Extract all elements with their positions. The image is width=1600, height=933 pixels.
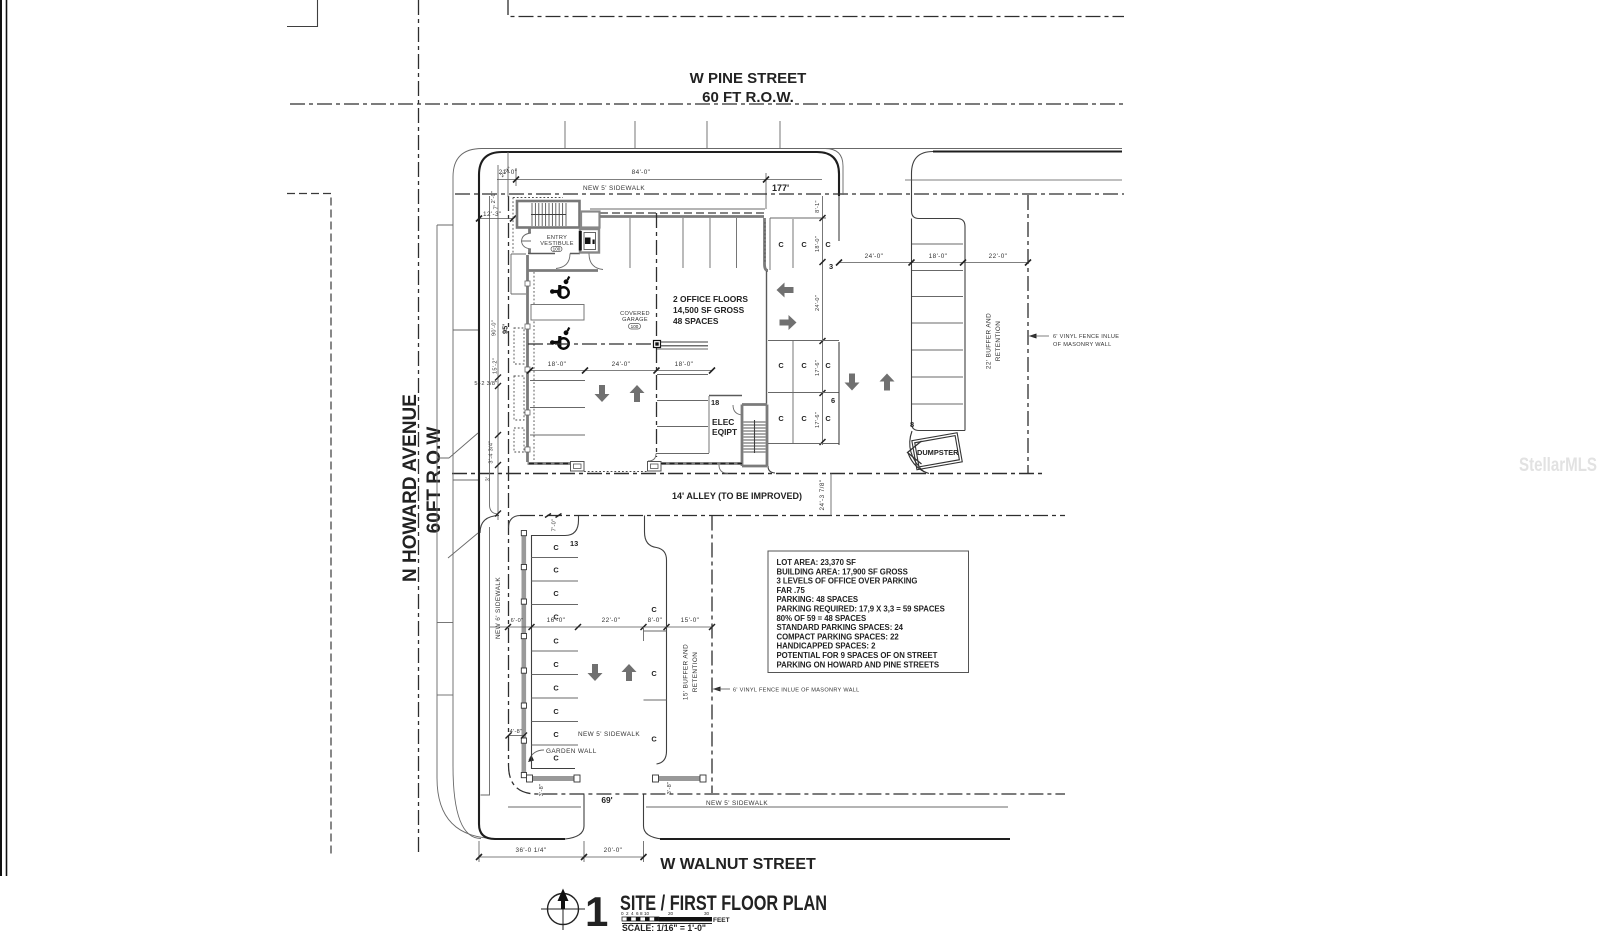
svg-text:20'-0": 20'-0" bbox=[604, 847, 623, 854]
svg-text:NEW 6' SIDEWALK: NEW 6' SIDEWALK bbox=[495, 577, 502, 639]
svg-text:100: 100 bbox=[553, 247, 561, 252]
svg-text:16'-0": 16'-0" bbox=[547, 617, 566, 624]
svg-text:C: C bbox=[778, 361, 784, 370]
svg-text:20: 20 bbox=[668, 911, 674, 916]
svg-text:C: C bbox=[801, 414, 807, 423]
svg-text:24'-0": 24'-0" bbox=[815, 295, 821, 311]
svg-text:15' BUFFER AND: 15' BUFFER AND bbox=[683, 644, 690, 700]
svg-text:4'-8": 4'-8" bbox=[510, 729, 523, 735]
svg-text:FAR .75: FAR .75 bbox=[777, 586, 806, 595]
svg-text:C: C bbox=[778, 240, 784, 249]
svg-text:2: 2 bbox=[626, 911, 629, 916]
svg-text:15'-2": 15'-2" bbox=[493, 358, 499, 374]
svg-text:17'-6": 17'-6" bbox=[815, 412, 821, 428]
svg-text:6' VINYL FENCE INLUE: 6' VINYL FENCE INLUE bbox=[1053, 334, 1119, 340]
svg-text:C: C bbox=[553, 637, 559, 646]
svg-text:W WALNUT STREET: W WALNUT STREET bbox=[660, 856, 816, 873]
svg-text:W PINE STREET: W PINE STREET bbox=[690, 70, 807, 87]
svg-text:8'-1": 8'-1" bbox=[815, 200, 821, 213]
svg-text:8: 8 bbox=[640, 911, 643, 916]
svg-text:4: 4 bbox=[631, 911, 634, 916]
svg-text:36'-0 1/4": 36'-0 1/4" bbox=[516, 847, 547, 854]
svg-text:6' VINYL FENCE INLUE OF M: 6' VINYL FENCE INLUE OF MASONRY WALL bbox=[733, 688, 860, 694]
svg-text:3'-8": 3'-8" bbox=[539, 784, 545, 797]
svg-text:7'-0": 7'-0" bbox=[552, 519, 558, 532]
svg-text:ELEC: ELEC bbox=[712, 417, 734, 427]
svg-text:EQIPT: EQIPT bbox=[712, 427, 738, 437]
svg-text:STANDARD PARKING SPACES: 24: STANDARD PARKING SPACES: 24 bbox=[777, 623, 904, 632]
svg-text:18'-0": 18'-0" bbox=[675, 361, 694, 368]
svg-text:80% OF 59 = 48 SPACES: 80% OF 59 = 48 SPACES bbox=[777, 614, 867, 623]
svg-text:C: C bbox=[825, 240, 831, 249]
svg-text:15'-0": 15'-0" bbox=[681, 617, 700, 624]
svg-text:30: 30 bbox=[704, 911, 710, 916]
svg-text:NEW 5' SIDEWALK: NEW 5' SIDEWALK bbox=[583, 185, 645, 192]
svg-text:N HOWARD AVENUE: N HOWARD AVENUE bbox=[400, 394, 421, 582]
svg-text:3: 3 bbox=[829, 262, 833, 271]
svg-text:18'-0": 18'-0" bbox=[815, 236, 821, 252]
svg-text:BUILDING AREA: 17,900 SF GROSS: BUILDING AREA: 17,900 SF GROSS bbox=[777, 567, 908, 576]
svg-text:RETENTION: RETENTION bbox=[692, 652, 699, 693]
svg-text:60FT R.O.W: 60FT R.O.W bbox=[424, 427, 445, 534]
svg-text:3 LEVELS OF OFFICE OVER PARKIN: 3 LEVELS OF OFFICE OVER PARKING bbox=[777, 577, 918, 586]
svg-text:69': 69' bbox=[601, 795, 612, 805]
svg-text:12'-3": 12'-3" bbox=[483, 211, 502, 218]
svg-text:5'-2 3/8": 5'-2 3/8" bbox=[474, 381, 497, 387]
svg-text:13: 13 bbox=[570, 539, 578, 548]
svg-text:2'-0": 2'-0" bbox=[491, 191, 497, 204]
svg-text:C: C bbox=[553, 543, 559, 552]
svg-text:C: C bbox=[651, 669, 657, 678]
svg-text:10: 10 bbox=[644, 911, 650, 916]
svg-text:24'-0": 24'-0" bbox=[865, 253, 884, 260]
svg-text:C: C bbox=[553, 707, 559, 716]
svg-text:3': 3' bbox=[486, 477, 492, 482]
svg-text:3'-4 3/4": 3'-4 3/4" bbox=[489, 440, 495, 463]
svg-text:6'-0": 6'-0" bbox=[511, 618, 524, 624]
svg-text:C: C bbox=[651, 605, 657, 614]
svg-text:84'-0": 84'-0" bbox=[632, 169, 651, 176]
svg-text:NEW 5' SIDEWALK: NEW 5' SIDEWALK bbox=[578, 731, 640, 738]
svg-text:GARAGE: GARAGE bbox=[622, 317, 648, 323]
svg-text:PARKING: 48 SPACES: PARKING: 48 SPACES bbox=[777, 595, 859, 604]
svg-text:C: C bbox=[825, 361, 831, 370]
svg-text:C: C bbox=[825, 414, 831, 423]
svg-text:22'-0": 22'-0" bbox=[602, 617, 621, 624]
svg-text:NEW 5' SIDEWALK: NEW 5' SIDEWALK bbox=[706, 800, 768, 807]
svg-text:C: C bbox=[553, 730, 559, 739]
svg-text:C: C bbox=[778, 414, 784, 423]
svg-text:22' BUFFER AND: 22' BUFFER AND bbox=[986, 313, 993, 369]
svg-text:C: C bbox=[553, 660, 559, 669]
svg-text:1: 1 bbox=[585, 888, 608, 933]
svg-text:22'-0": 22'-0" bbox=[989, 253, 1008, 260]
svg-text:17'-6": 17'-6" bbox=[815, 360, 821, 376]
svg-text:C: C bbox=[553, 684, 559, 693]
svg-text:6: 6 bbox=[636, 911, 639, 916]
svg-text:24'-0": 24'-0" bbox=[612, 361, 631, 368]
svg-text:7': 7' bbox=[494, 205, 500, 210]
svg-text:2 OFFICE FLOORS: 2 OFFICE FLOORS bbox=[673, 294, 748, 304]
svg-text:14,500 SF GROSS: 14,500 SF GROSS bbox=[673, 305, 745, 315]
svg-text:C: C bbox=[801, 361, 807, 370]
svg-text:C: C bbox=[651, 735, 657, 744]
svg-text:HANDICAPPED SPACES: 2: HANDICAPPED SPACES: 2 bbox=[777, 642, 877, 651]
svg-text:100: 100 bbox=[631, 324, 639, 329]
svg-text:SITE / FIRST FLOOR PLAN: SITE / FIRST FLOOR PLAN bbox=[620, 892, 827, 915]
svg-text:C: C bbox=[553, 589, 559, 598]
svg-text:18'-0": 18'-0" bbox=[548, 361, 567, 368]
svg-text:48 SPACES: 48 SPACES bbox=[673, 316, 719, 326]
svg-text:6: 6 bbox=[831, 396, 835, 405]
svg-text:PARKING REQUIRED: 17,9 X 3,3 =: PARKING REQUIRED: 17,9 X 3,3 = 59 SPACES bbox=[777, 605, 945, 614]
svg-text:177': 177' bbox=[772, 183, 789, 193]
svg-text:14' ALLEY (TO BE IMPROVED): 14' ALLEY (TO BE IMPROVED) bbox=[672, 491, 802, 501]
svg-text:COMPACT PARKING SPACES: 22: COMPACT PARKING SPACES: 22 bbox=[777, 632, 900, 641]
svg-text:DUMPSTER: DUMPSTER bbox=[917, 448, 959, 457]
svg-text:C: C bbox=[553, 566, 559, 575]
svg-text:C: C bbox=[553, 754, 559, 763]
svg-text:95': 95' bbox=[501, 324, 510, 334]
svg-text:24'-3 7/8": 24'-3 7/8" bbox=[819, 480, 826, 511]
svg-text:StellarMLS: StellarMLS bbox=[1519, 455, 1597, 476]
svg-text:FEET: FEET bbox=[713, 917, 730, 924]
svg-text:90'-0": 90'-0" bbox=[492, 320, 498, 336]
svg-text:PARKING ON HOWARD AND PINE STR: PARKING ON HOWARD AND PINE STREETS bbox=[777, 660, 939, 669]
svg-text:LOT AREA: 23,370 SF: LOT AREA: 23,370 SF bbox=[777, 558, 857, 567]
svg-text:POTENTIAL FOR 9 SPACES OF ON S: POTENTIAL FOR 9 SPACES OF ON STREET bbox=[777, 651, 938, 660]
svg-text:OF MASONRY WALL: OF MASONRY WALL bbox=[1053, 342, 1111, 348]
svg-text:0: 0 bbox=[621, 911, 624, 916]
svg-text:RETENTION: RETENTION bbox=[995, 321, 1002, 362]
svg-text:SCALE: 1/16" = 1'-0": SCALE: 1/16" = 1'-0" bbox=[622, 923, 706, 933]
svg-text:8'-0": 8'-0" bbox=[648, 617, 663, 624]
svg-text:3'-8": 3'-8" bbox=[667, 782, 673, 795]
svg-text:18: 18 bbox=[711, 398, 719, 407]
svg-text:C: C bbox=[801, 240, 807, 249]
svg-text:18'-0": 18'-0" bbox=[929, 253, 948, 260]
svg-text:8: 8 bbox=[910, 420, 914, 429]
